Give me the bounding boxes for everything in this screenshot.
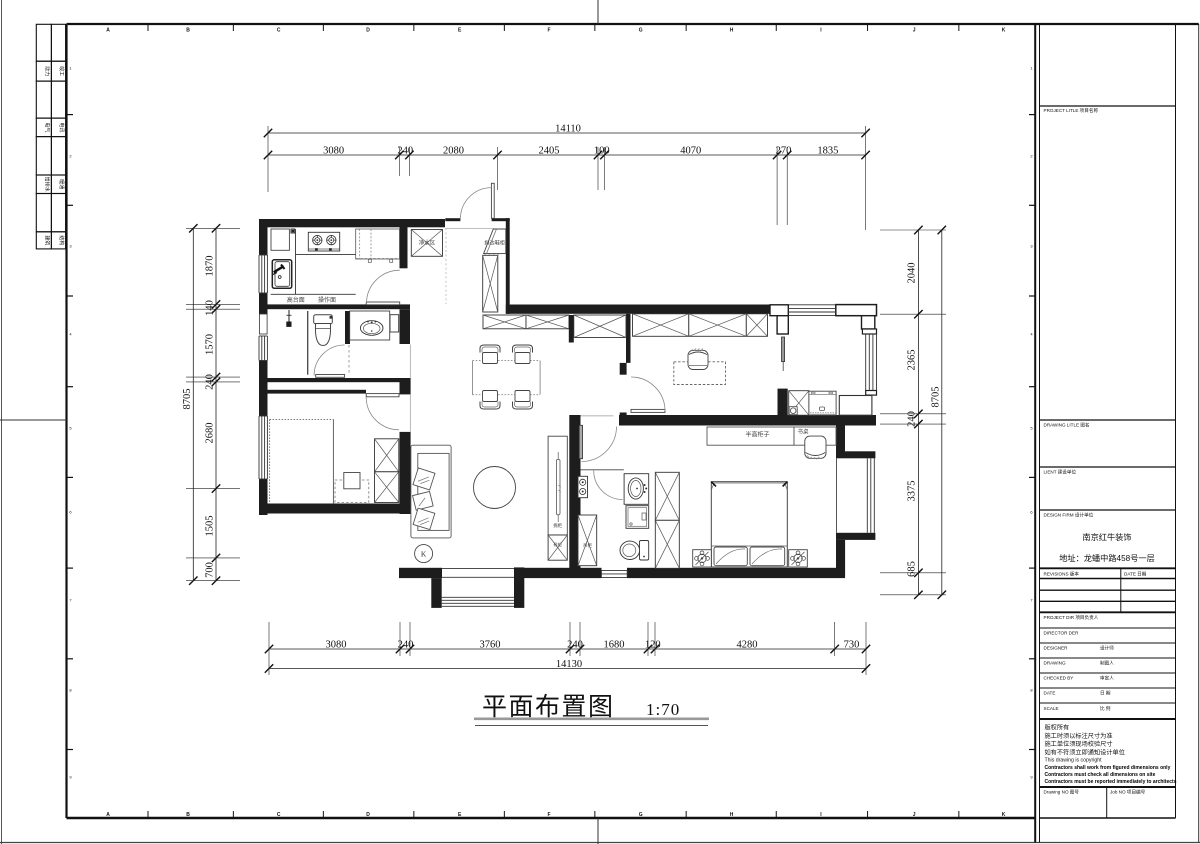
- svg-text:1505: 1505: [205, 516, 216, 537]
- svg-text:8705: 8705: [931, 387, 942, 408]
- svg-text:240: 240: [567, 640, 583, 651]
- svg-text:CHECKED BY: CHECKED BY: [1044, 676, 1074, 681]
- svg-text:B: B: [186, 28, 190, 34]
- svg-text:100: 100: [594, 146, 610, 157]
- svg-text:施工时须以标注尺寸为准: 施工时须以标注尺寸为准: [1045, 732, 1113, 740]
- svg-text:H: H: [730, 28, 734, 34]
- svg-text:2040: 2040: [907, 263, 918, 284]
- svg-text:H: H: [730, 812, 734, 818]
- svg-text:REVISIONS 版本: REVISIONS 版本: [1044, 571, 1080, 578]
- svg-text:LIENT 建设单位: LIENT 建设单位: [1044, 469, 1077, 476]
- svg-text:4280: 4280: [737, 640, 758, 651]
- svg-text:8705: 8705: [182, 389, 193, 410]
- svg-text:书桌: 书桌: [797, 427, 809, 435]
- svg-text:240: 240: [397, 146, 413, 157]
- svg-text:比 例: 比 例: [1100, 705, 1111, 712]
- svg-text:270: 270: [776, 146, 792, 157]
- svg-text:240: 240: [907, 411, 918, 427]
- svg-text:D: D: [366, 28, 370, 34]
- svg-text:如有不符须立即通知设计单位: 如有不符须立即通知设计单位: [1045, 748, 1125, 756]
- svg-text:1870: 1870: [205, 256, 216, 277]
- svg-text:G: G: [639, 812, 643, 818]
- svg-text:平面布置图: 平面布置图: [482, 693, 615, 721]
- svg-text:685: 685: [907, 561, 918, 577]
- svg-text:C: C: [277, 812, 281, 818]
- svg-text:半高柜子: 半高柜子: [745, 431, 769, 439]
- svg-text:给排水: 给排水: [43, 177, 50, 192]
- svg-text:14130: 14130: [556, 659, 582, 670]
- svg-text:700: 700: [205, 562, 216, 578]
- svg-text:Job NO 项目编号: Job NO 项目编号: [1110, 789, 1146, 796]
- svg-text:动力: 动力: [43, 66, 50, 76]
- svg-text:DESIGN FIRM 设计单位: DESIGN FIRM 设计单位: [1044, 512, 1094, 519]
- svg-text:净水区: 净水区: [419, 239, 436, 247]
- svg-text:J: J: [913, 28, 916, 34]
- svg-text:2080: 2080: [443, 146, 464, 157]
- svg-text:1835: 1835: [817, 146, 838, 157]
- svg-text:制图人: 制图人: [1100, 660, 1114, 667]
- svg-text:1680: 1680: [604, 640, 625, 651]
- svg-text:斜边鞋柜: 斜边鞋柜: [484, 239, 505, 247]
- svg-text:吊柜: 吊柜: [583, 542, 592, 549]
- svg-text:地址：龙蟠中路458号一层: 地址：龙蟠中路458号一层: [1059, 553, 1155, 563]
- svg-text:F: F: [547, 28, 550, 34]
- svg-text:DRAWING: DRAWING: [1044, 661, 1066, 666]
- svg-text:J: J: [913, 812, 916, 818]
- svg-text:电气: 电气: [43, 122, 50, 132]
- svg-text:B: B: [186, 812, 190, 818]
- svg-text:操作面: 操作面: [318, 296, 336, 304]
- svg-text:Contractors must check all dim: Contractors must check all dimensions on…: [1045, 772, 1156, 778]
- svg-text:1570: 1570: [205, 334, 216, 355]
- svg-text:120: 120: [645, 640, 661, 651]
- svg-text:Contractors must be reported i: Contractors must be reported immediately…: [1045, 779, 1177, 785]
- svg-text:PROJECT LITLE 项目名称: PROJECT LITLE 项目名称: [1044, 107, 1099, 114]
- svg-text:暖通: 暖通: [58, 179, 65, 189]
- svg-text:设计师: 设计师: [1100, 645, 1114, 652]
- svg-text:240: 240: [205, 374, 216, 390]
- svg-text:DIRECTOR DER: DIRECTOR DER: [1044, 631, 1080, 636]
- svg-text:版权所有: 版权所有: [1045, 724, 1070, 732]
- svg-text:2405: 2405: [539, 146, 560, 157]
- svg-text:A: A: [106, 28, 110, 34]
- svg-text:DRAWING LITLE 图名: DRAWING LITLE 图名: [1044, 422, 1090, 429]
- svg-text:A: A: [106, 812, 110, 818]
- svg-text:3080: 3080: [326, 640, 347, 651]
- svg-text:14110: 14110: [555, 124, 581, 135]
- svg-text:DATE: DATE: [1044, 691, 1056, 696]
- svg-text:电讯: 电讯: [58, 122, 65, 132]
- svg-text:施工单位须现场校验尺寸: 施工单位须现场校验尺寸: [1045, 740, 1113, 748]
- svg-text:4070: 4070: [680, 146, 701, 157]
- svg-text:鞋柜: 鞋柜: [554, 541, 562, 548]
- svg-text:1:70: 1:70: [646, 700, 680, 719]
- svg-text:审定人: 审定人: [1100, 675, 1114, 682]
- svg-text:竣工: 竣工: [58, 66, 65, 76]
- svg-text:2680: 2680: [205, 423, 216, 444]
- svg-text:南京红牛装饰: 南京红牛装饰: [1082, 532, 1131, 542]
- svg-text:2365: 2365: [907, 350, 918, 371]
- svg-text:Contractors shall work from fi: Contractors shall work from figured dime…: [1045, 765, 1171, 771]
- svg-text:PROJECT DIR 项目负责人: PROJECT DIR 项目负责人: [1044, 614, 1099, 621]
- svg-text:K: K: [1002, 812, 1006, 818]
- svg-text:C: C: [277, 28, 281, 34]
- svg-text:D: D: [366, 812, 370, 818]
- svg-text:G: G: [639, 28, 643, 34]
- svg-text:DESIGNER: DESIGNER: [1044, 646, 1069, 651]
- svg-text:SCALE: SCALE: [1044, 706, 1059, 711]
- svg-text:This drawing is copyright: This drawing is copyright: [1045, 758, 1103, 764]
- svg-text:240: 240: [398, 640, 414, 651]
- svg-text:K: K: [1002, 28, 1006, 34]
- svg-text:结构: 结构: [58, 235, 65, 245]
- svg-text:730: 730: [844, 640, 860, 651]
- svg-text:3080: 3080: [323, 146, 344, 157]
- svg-text:建筑: 建筑: [43, 235, 50, 245]
- svg-text:3375: 3375: [907, 481, 918, 502]
- svg-text:高台面: 高台面: [287, 296, 305, 304]
- svg-text:挑柜: 挑柜: [553, 522, 562, 529]
- svg-text:3760: 3760: [480, 640, 501, 651]
- svg-text:F: F: [547, 812, 550, 818]
- svg-text:K: K: [421, 550, 427, 559]
- svg-text:140: 140: [205, 300, 216, 316]
